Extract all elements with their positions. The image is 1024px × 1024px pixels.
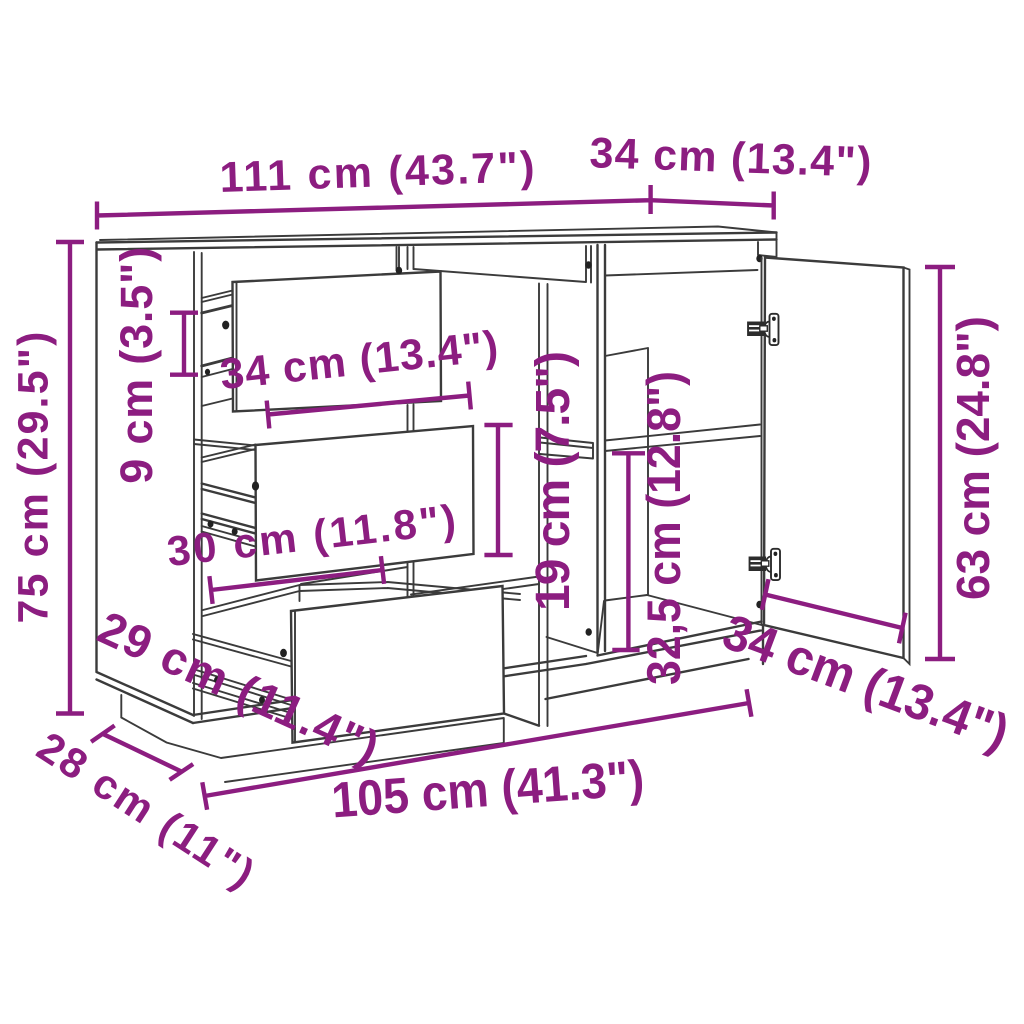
svg-text:9 cm (3.5"): 9 cm (3.5") [111,247,162,484]
svg-text:34 cm (13.4"): 34 cm (13.4") [589,129,873,187]
svg-text:75 cm (29.5"): 75 cm (29.5") [10,332,58,624]
svg-text:63 cm (24.8"): 63 cm (24.8") [947,316,999,600]
svg-text:19 cm (7.5"): 19 cm (7.5") [527,351,580,611]
svg-text:32,5 cm (12.8"): 32,5 cm (12.8") [637,371,690,685]
